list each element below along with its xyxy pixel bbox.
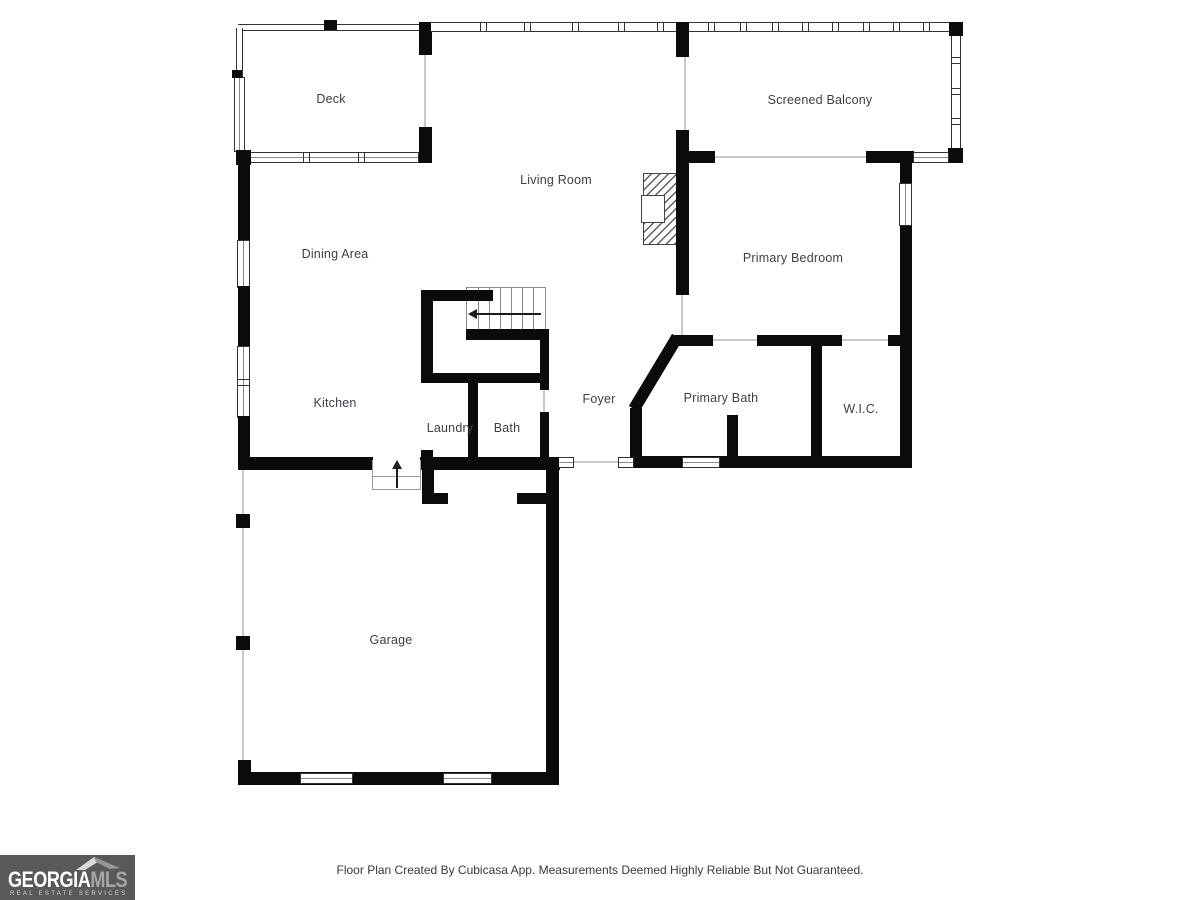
bath-window (682, 457, 720, 468)
window-mullion (772, 22, 779, 32)
balcony-right-window-wall (951, 36, 961, 148)
wall-segment (422, 493, 448, 504)
wall-segment (238, 457, 373, 470)
window-mullion (480, 22, 487, 32)
wic-door-threshold (842, 339, 888, 341)
logo-mls-text: MLS (90, 867, 127, 892)
wall-segment (949, 22, 963, 36)
room-label-primary-bedroom: Primary Bedroom (743, 251, 843, 265)
logo-wordmark: GEORGIAMLS (8, 867, 127, 893)
window-mullion (923, 22, 930, 32)
room-label-garage: Garage (370, 633, 413, 647)
wall-segment (324, 20, 337, 30)
deck-bottom-window (250, 152, 419, 163)
wall-segment (630, 408, 642, 463)
stair-tread (533, 288, 534, 330)
garage-steps-direction-line (396, 468, 398, 488)
front-door-threshold (574, 461, 618, 463)
wall-segment (689, 151, 715, 163)
wall-segment (238, 416, 250, 470)
stair-tread (522, 288, 523, 330)
garage-window (443, 773, 492, 784)
logo-georgia-text: GEORGIA (8, 867, 90, 892)
wall-segment (671, 335, 713, 346)
stair-tread (500, 288, 501, 330)
deck-door-threshold (424, 55, 426, 127)
wall-segment (757, 335, 842, 346)
kitchen-window (237, 346, 250, 418)
wall-segment (236, 514, 250, 528)
wall-segment (420, 457, 560, 470)
bath-door-threshold (713, 339, 757, 341)
room-label-living-room: Living Room (520, 173, 592, 187)
dining-window (237, 240, 250, 288)
window-mullion (657, 22, 664, 32)
window-mullion (708, 22, 715, 32)
wall-segment (236, 636, 250, 650)
balcony-bottom-window (913, 152, 949, 163)
wall-segment (866, 151, 914, 163)
wall-segment (421, 290, 493, 301)
bedroom-door-threshold (681, 295, 683, 335)
entry-sidelight-window (618, 457, 634, 468)
fireplace-opening (641, 195, 665, 223)
wall-segment (238, 286, 250, 348)
stair-direction-arrow (468, 309, 477, 319)
window-mullion (303, 152, 310, 163)
wall-segment (948, 148, 963, 163)
window-mullion (618, 22, 625, 32)
wall-segment (238, 772, 559, 785)
wall-segment (517, 493, 548, 504)
wall-segment (888, 335, 901, 346)
room-label-kitchen: Kitchen (313, 396, 356, 410)
room-label-laundry: Laundry (427, 421, 474, 435)
window-mullion (951, 57, 961, 64)
room-label-primary-bath: Primary Bath (684, 391, 759, 405)
floor-plan-page: Deck Living Room Screened Balcony Dining… (0, 0, 1200, 900)
window-mullion (863, 22, 870, 32)
georgia-mls-logo: GEORGIAMLS REAL ESTATE SERVICES (0, 855, 135, 900)
room-label-dining-area: Dining Area (302, 247, 369, 261)
bath-door-threshold (543, 390, 545, 412)
disclaimer-text: Floor Plan Created By Cubicasa App. Meas… (0, 863, 1200, 877)
wall-segment (540, 412, 549, 463)
wall-segment (419, 127, 432, 163)
wall-segment (238, 160, 250, 242)
window-mullion (951, 88, 961, 95)
stair-tread (511, 288, 512, 330)
wall-segment (676, 22, 689, 57)
window-mullion (237, 379, 250, 386)
bedroom-window (899, 183, 912, 226)
garage-steps-outline (372, 489, 421, 490)
wall-segment (546, 457, 559, 785)
wall-segment (676, 130, 689, 163)
deck-left-window (234, 77, 245, 152)
living-room-window-wall (431, 22, 677, 32)
balcony-door-threshold (684, 57, 686, 130)
wall-segment (232, 70, 242, 78)
window-mullion (893, 22, 900, 32)
room-label-deck: Deck (316, 92, 345, 106)
garage-steps-outline (372, 460, 373, 490)
window-mullion (802, 22, 809, 32)
wall-segment (421, 373, 548, 383)
window-mullion (832, 22, 839, 32)
garage-steps-outline (420, 460, 421, 490)
entry-sidelight-window (557, 457, 574, 468)
wall-segment (676, 163, 689, 295)
wall-segment (466, 329, 547, 340)
wall-segment (811, 341, 822, 463)
room-label-foyer: Foyer (583, 392, 616, 406)
balcony-opening-line (715, 156, 866, 158)
garage-steps-direction-arrow (392, 460, 402, 469)
window-mullion (524, 22, 531, 32)
balcony-top-window-wall (689, 22, 950, 32)
window-mullion (740, 22, 747, 32)
logo-tagline: REAL ESTATE SERVICES (10, 891, 127, 897)
room-label-bath: Bath (494, 421, 521, 435)
room-label-wic: W.I.C. (843, 402, 878, 416)
window-mullion (951, 118, 961, 125)
wall-segment (421, 290, 433, 383)
room-label-screened-balcony: Screened Balcony (768, 93, 873, 107)
window-mullion (358, 152, 365, 163)
stair-direction-line (475, 313, 541, 315)
garage-window (300, 773, 353, 784)
wall-segment (630, 456, 912, 468)
window-mullion (572, 22, 579, 32)
